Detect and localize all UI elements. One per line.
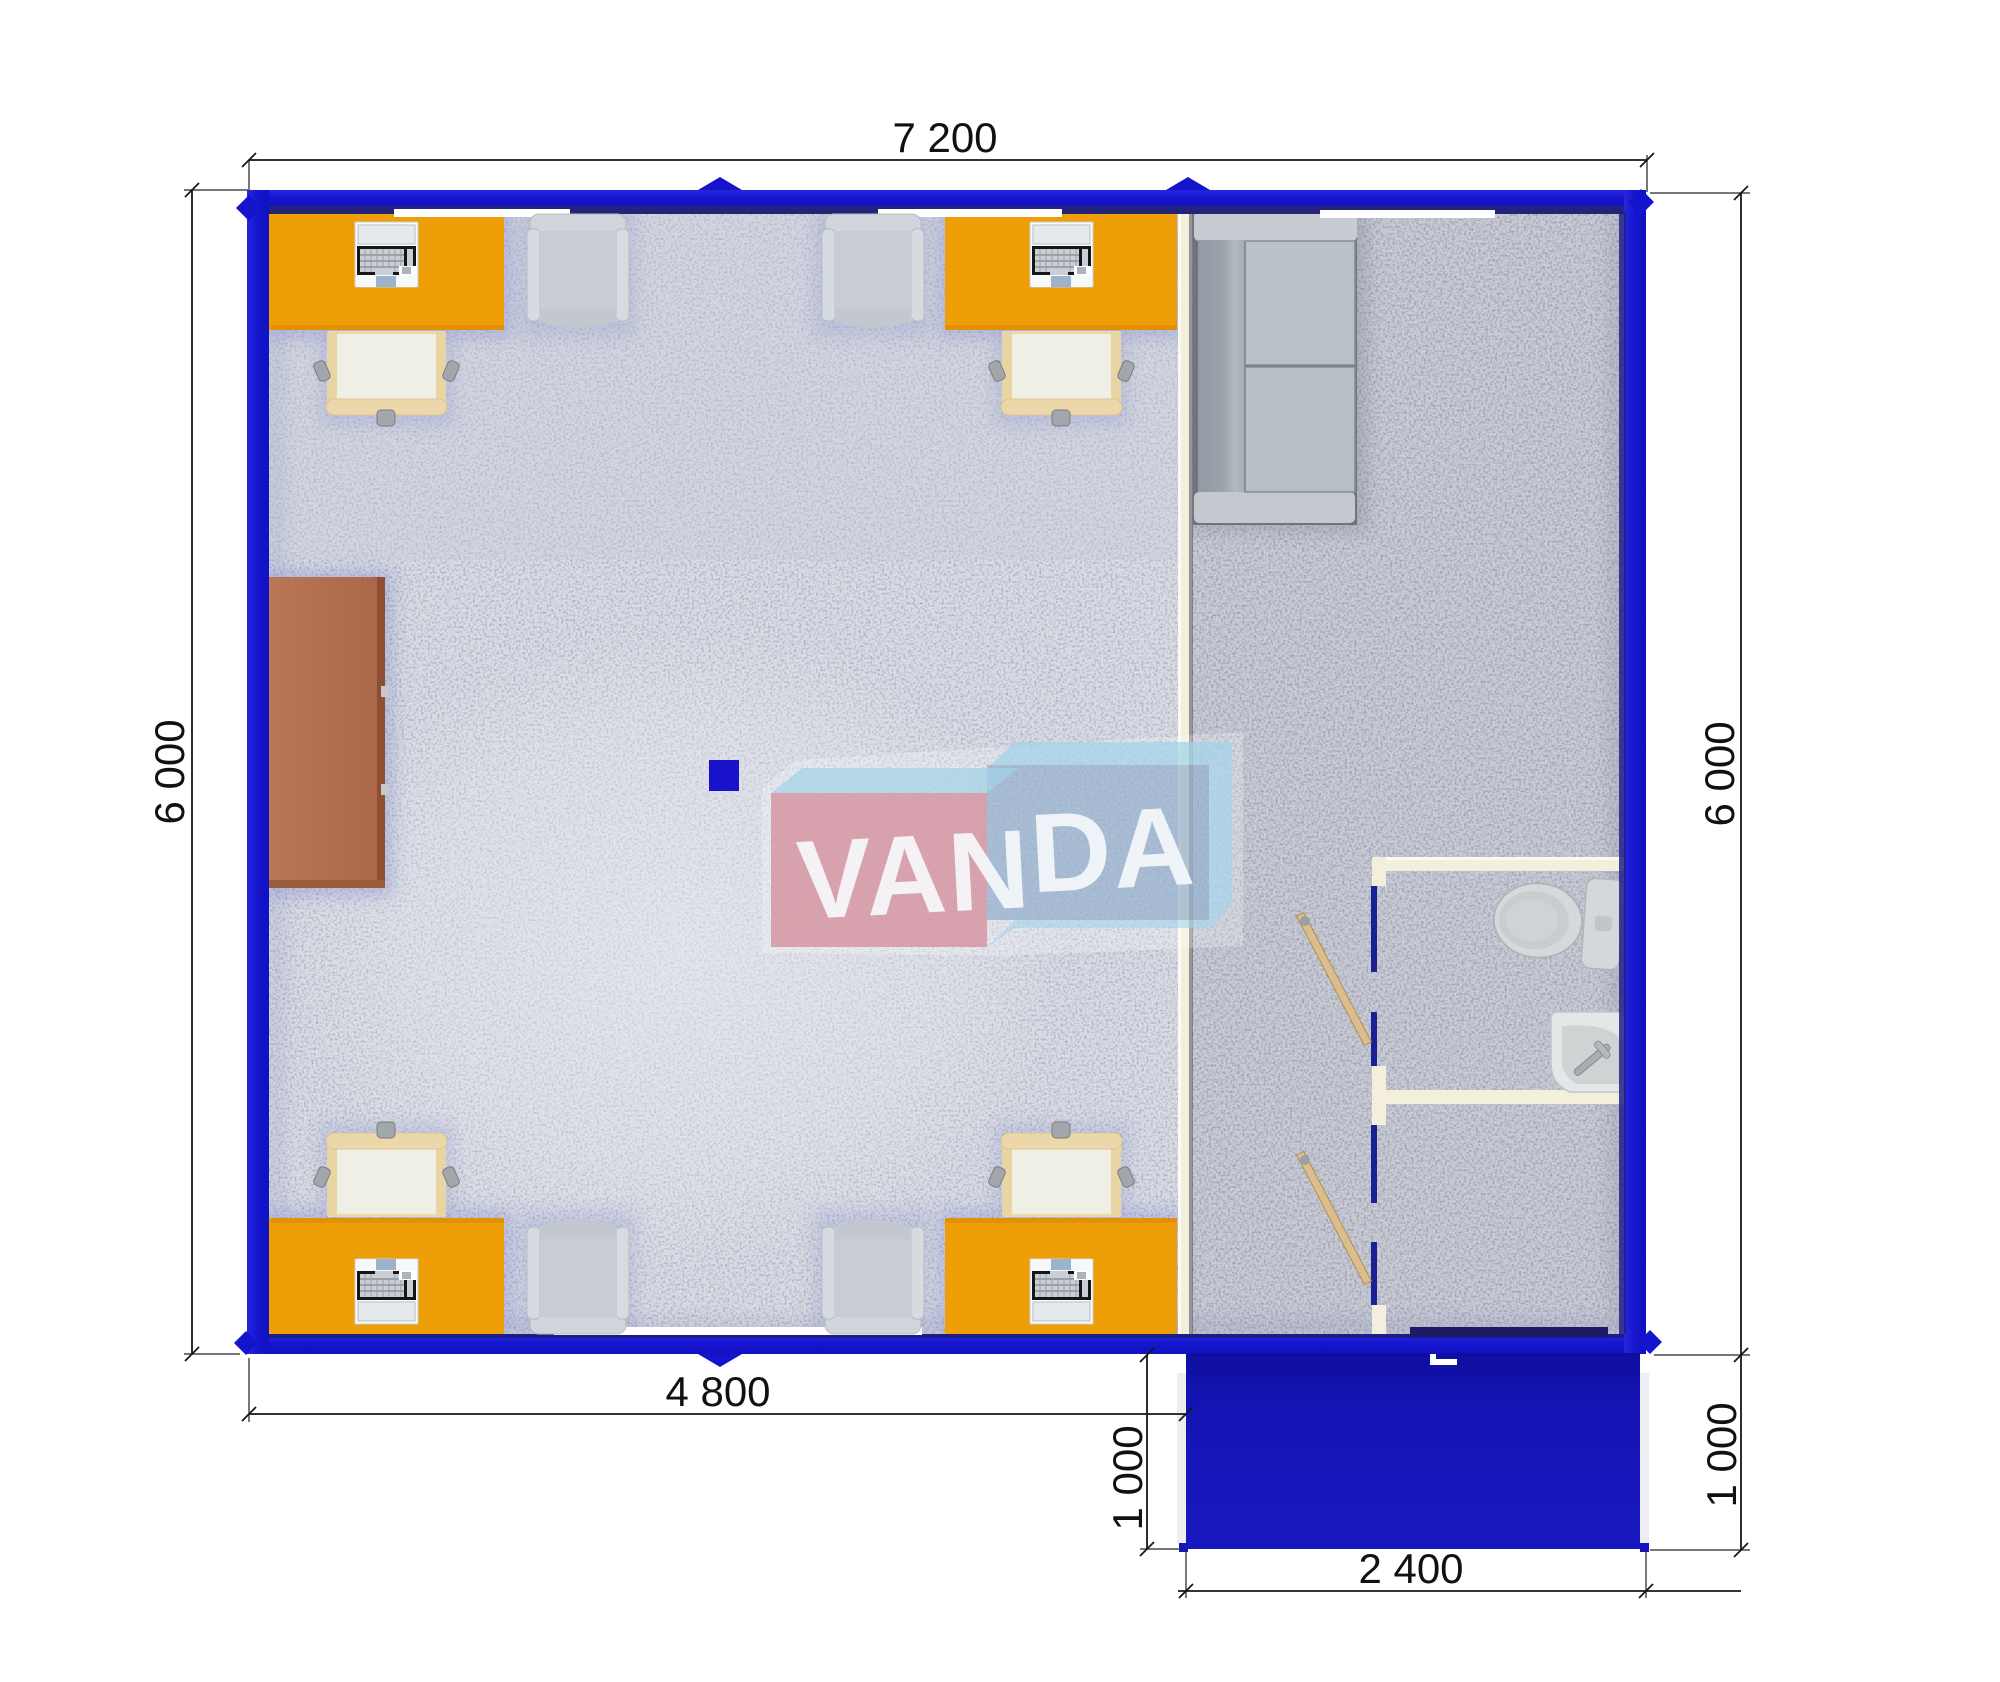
svg-text:2 400: 2 400 [1358, 1545, 1463, 1592]
svg-text:4 800: 4 800 [665, 1368, 770, 1415]
svg-text:6 000: 6 000 [1696, 721, 1743, 826]
svg-text:VAN: VAN [794, 806, 1034, 943]
svg-text:7 200: 7 200 [892, 114, 997, 161]
svg-text:6 000: 6 000 [146, 719, 193, 824]
svg-text:1 000: 1 000 [1104, 1425, 1151, 1530]
svg-text:DA: DA [1027, 783, 1199, 917]
svg-text:1 000: 1 000 [1698, 1402, 1745, 1507]
